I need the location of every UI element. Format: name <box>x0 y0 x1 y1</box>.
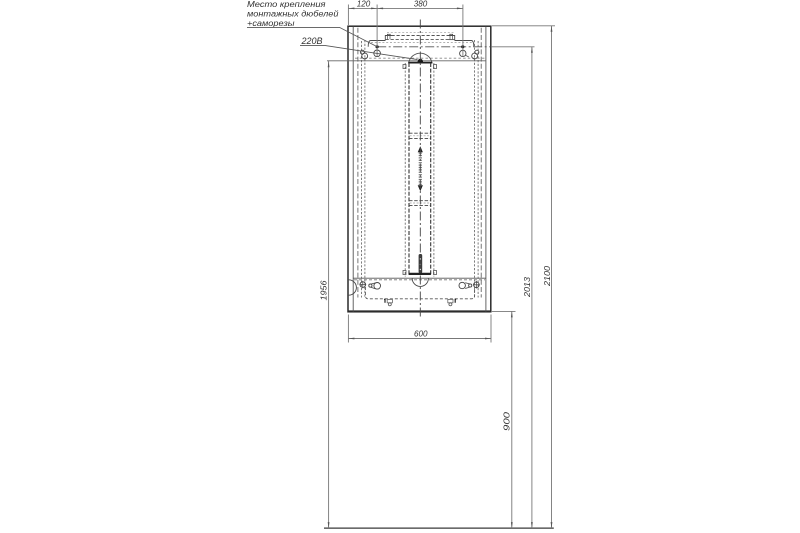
svg-text:600: 600 <box>414 328 428 338</box>
svg-text:+саморезы: +саморезы <box>247 18 295 28</box>
svg-text:2013: 2013 <box>522 277 532 298</box>
svg-text:380: 380 <box>414 0 428 9</box>
svg-text:120: 120 <box>357 0 371 9</box>
svg-text:монтажных дюбелей: монтажных дюбелей <box>247 9 339 19</box>
svg-text:1956: 1956 <box>319 280 329 300</box>
svg-text:2100: 2100 <box>542 266 552 287</box>
svg-text:220В: 220В <box>301 36 323 46</box>
svg-text:900: 900 <box>501 412 511 431</box>
